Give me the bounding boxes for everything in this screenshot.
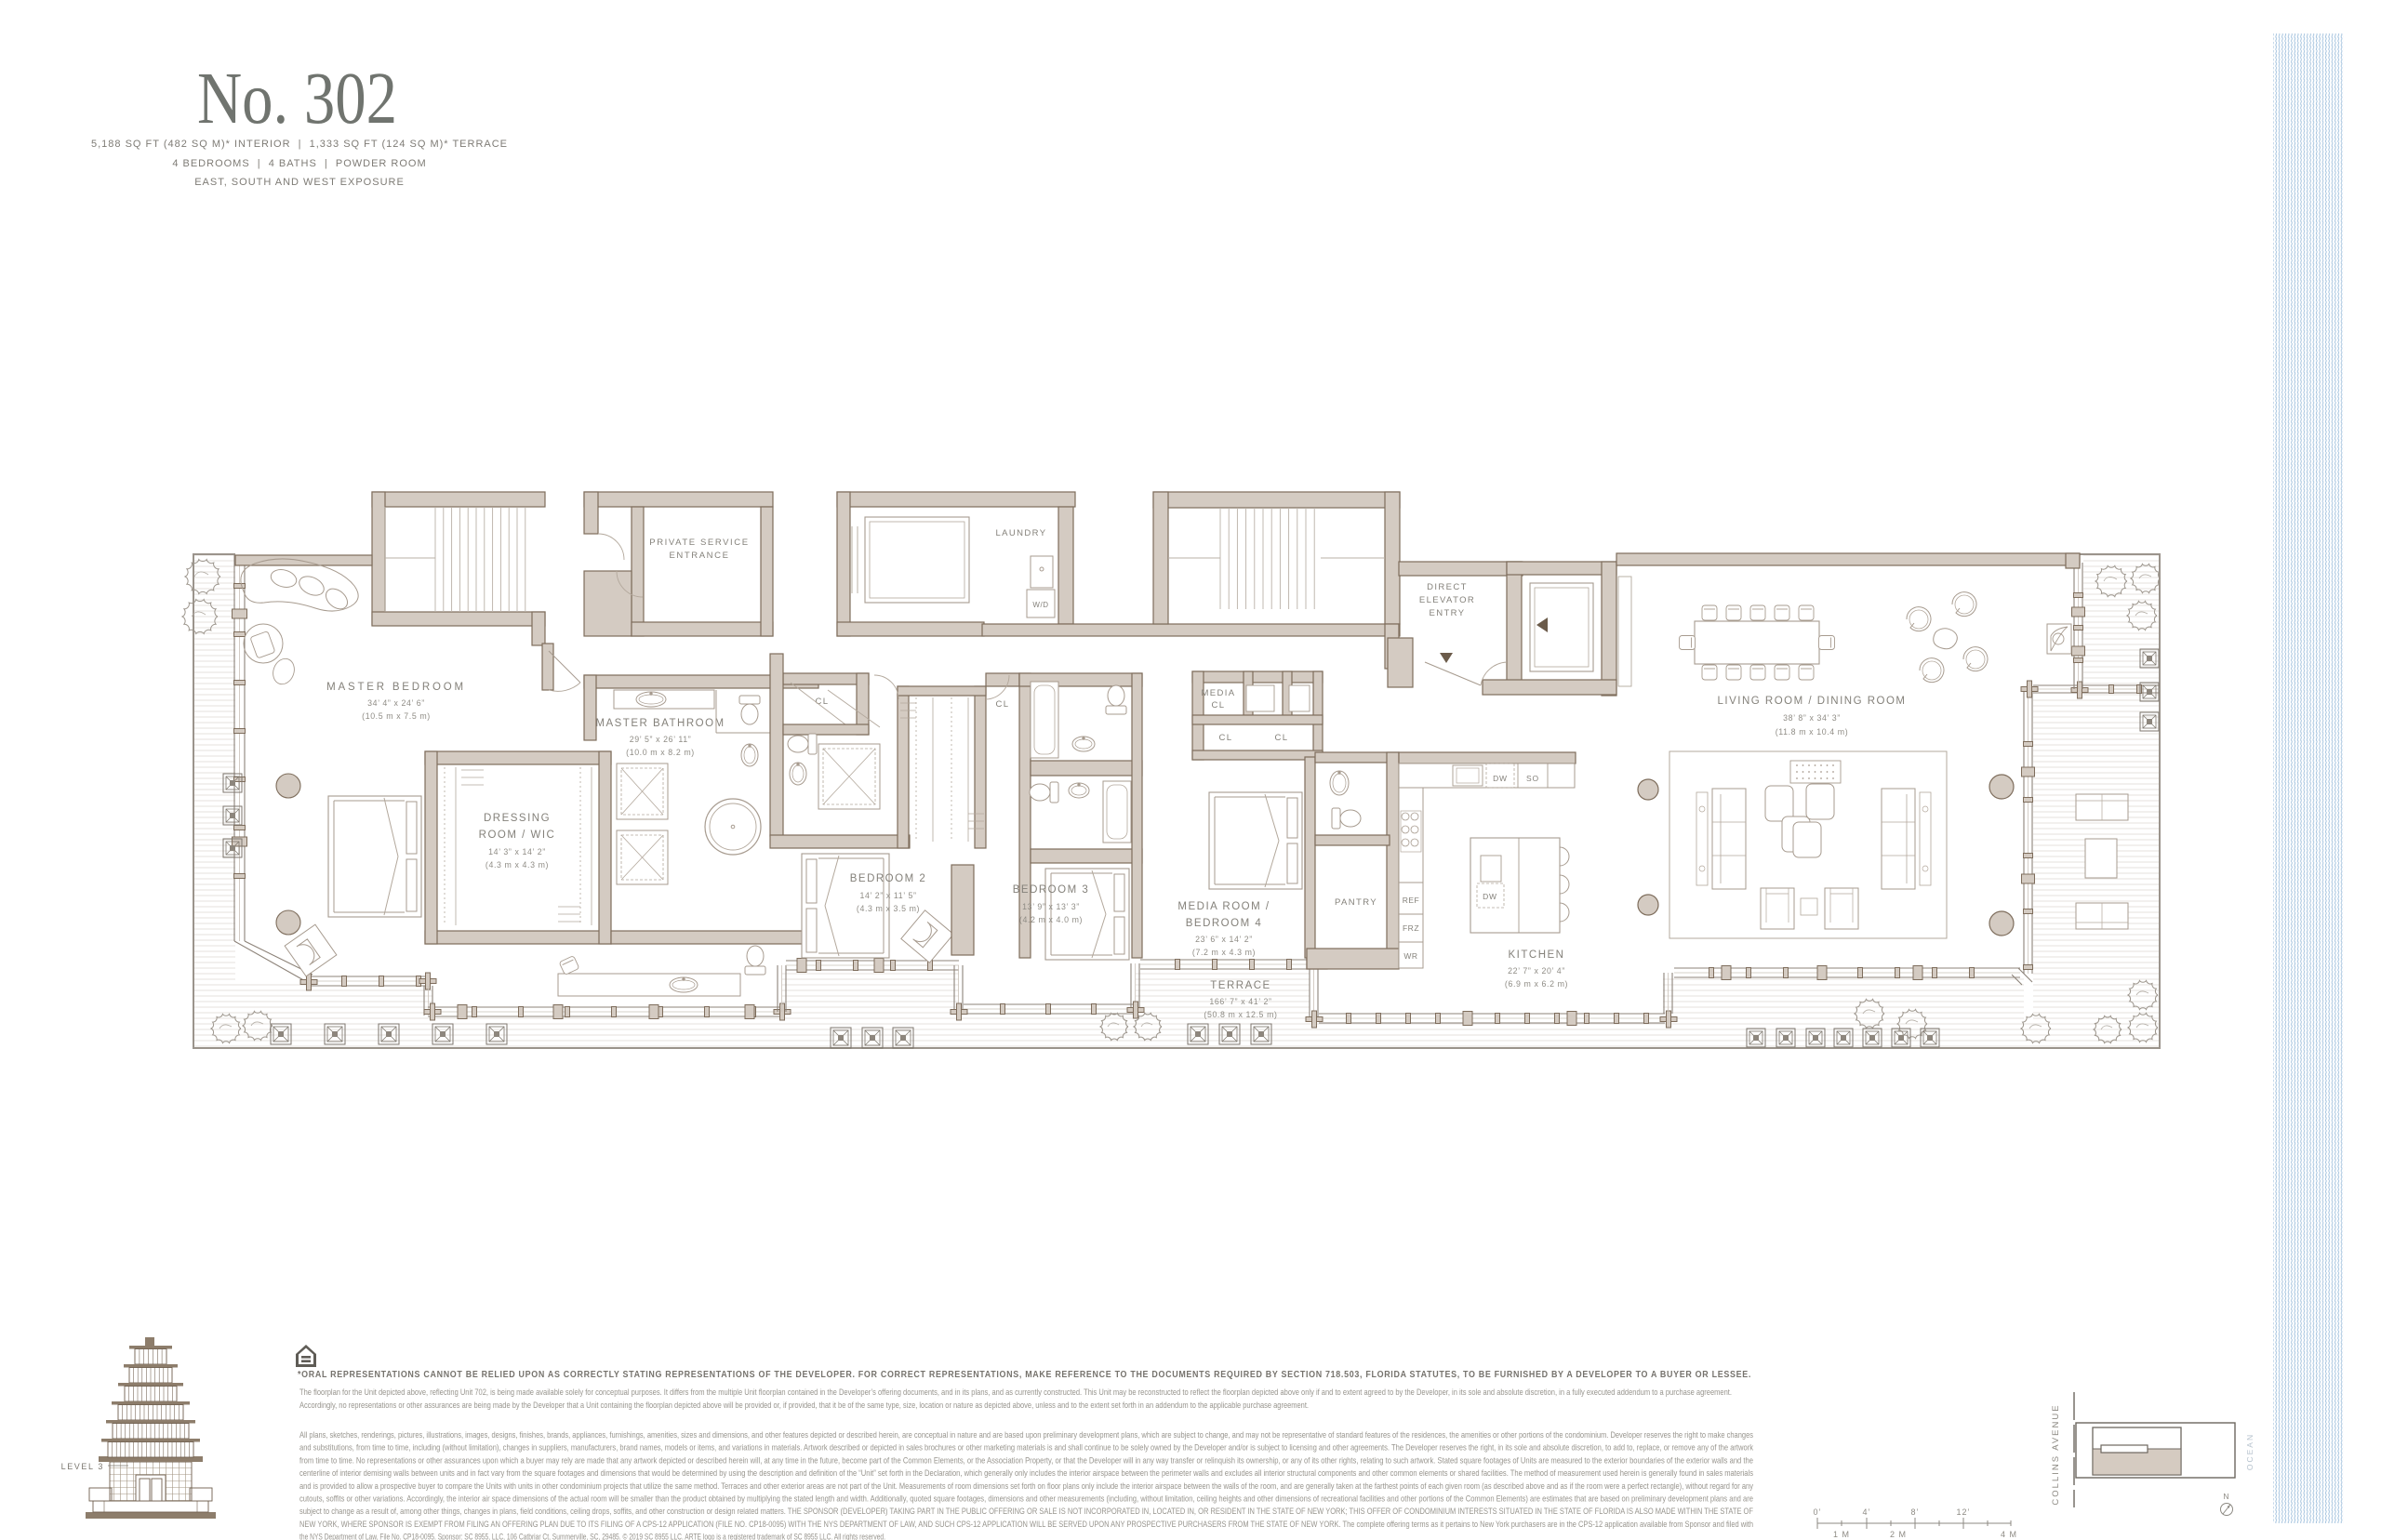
svg-text:and is provided to allow a pro: and is provided to allow a prospective b…: [299, 1481, 1753, 1492]
svg-text:MEDIA: MEDIA: [1201, 688, 1235, 698]
svg-text:CL: CL: [996, 699, 1010, 710]
svg-text:4’: 4’: [1862, 1507, 1870, 1517]
svg-text:ENTRY: ENTRY: [1429, 608, 1465, 618]
svg-text:166’ 7” x 41’ 2”: 166’ 7” x 41’ 2”: [1209, 997, 1271, 1006]
svg-text:ROOM / WIC: ROOM / WIC: [479, 830, 556, 841]
svg-text:LEVEL 3: LEVEL 3: [61, 1462, 104, 1471]
svg-text:The floorplan for the Unit dep: The floorplan for the Unit depicted abov…: [299, 1387, 1732, 1398]
svg-text:(4.3 m x 3.5 m): (4.3 m x 3.5 m): [857, 904, 920, 913]
svg-text:DW: DW: [1493, 774, 1508, 783]
svg-text:Accordingly, no representation: Accordingly, no representations or other…: [299, 1401, 1309, 1411]
svg-text:COLLINS AVENUE: COLLINS AVENUE: [2051, 1403, 2061, 1505]
svg-text:W/D: W/D: [1032, 601, 1048, 609]
svg-text:No. 302: No. 302: [197, 59, 397, 139]
svg-text:and substitutions, from time t: and substitutions, from time to time, in…: [299, 1443, 1753, 1454]
svg-text:CL: CL: [1275, 733, 1289, 743]
svg-text:CL: CL: [1219, 733, 1233, 743]
svg-text:from time to time. No represen: from time to time. No representations or…: [299, 1455, 1753, 1466]
svg-text:1 M: 1 M: [1833, 1530, 1850, 1539]
svg-text:(4.2 m x 4.0 m): (4.2 m x 4.0 m): [1019, 915, 1083, 924]
svg-text:SO: SO: [1526, 774, 1539, 783]
svg-text:DW: DW: [1483, 892, 1497, 901]
svg-text:34’ 4” x 24’ 6”: 34’ 4” x 24’ 6”: [367, 698, 425, 708]
svg-text:BEDROOM 3: BEDROOM 3: [1013, 884, 1090, 896]
svg-text:ENTRANCE: ENTRANCE: [669, 551, 729, 561]
svg-text:(6.9 m x 6.2 m): (6.9 m x 6.2 m): [1505, 979, 1568, 989]
svg-text:PANTRY: PANTRY: [1335, 897, 1377, 908]
svg-text:BEDROOM 2: BEDROOM 2: [850, 873, 927, 884]
svg-text:4 M: 4 M: [2001, 1530, 2017, 1539]
svg-text:23’ 6” x 14’ 2”: 23’ 6” x 14’ 2”: [1195, 935, 1253, 944]
svg-text:ELEVATOR: ELEVATOR: [1419, 595, 1475, 605]
svg-text:*ORAL REPRESENTATIONS CANNOT B: *ORAL REPRESENTATIONS CANNOT BE RELIED U…: [298, 1369, 1751, 1380]
svg-text:(4.3 m x 4.3 m): (4.3 m x 4.3 m): [486, 860, 549, 870]
svg-text:(50.8 m x 12.5 m): (50.8 m x 12.5 m): [1204, 1010, 1277, 1019]
svg-text:2 M: 2 M: [1890, 1530, 1907, 1539]
svg-text:WR: WR: [1403, 951, 1417, 961]
svg-text:12’: 12’: [1956, 1507, 1970, 1517]
svg-text:NEW YORK, WHERE SPONSOR IS EXE: NEW YORK, WHERE SPONSOR IS EXEMPT FROM F…: [299, 1520, 1753, 1530]
svg-text:LIVING ROOM / DINING ROOM: LIVING ROOM / DINING ROOM: [1718, 696, 1907, 707]
svg-text:(11.8 m x 10.4 m): (11.8 m x 10.4 m): [1776, 727, 1848, 737]
svg-text:5,188 SQ FT (482 SQ M)* INTERI: 5,188 SQ FT (482 SQ M)* INTERIOR | 1,333…: [91, 139, 508, 150]
svg-text:OCEAN: OCEAN: [2245, 1433, 2255, 1470]
svg-text:cutouts, soffits or other vari: cutouts, soffits or other variations. Ac…: [299, 1494, 1753, 1505]
svg-text:13’ 9” x 13’ 3”: 13’ 9” x 13’ 3”: [1022, 902, 1080, 911]
svg-text:MASTER BATHROOM: MASTER BATHROOM: [595, 718, 725, 729]
svg-text:22’ 7” x 20’ 4”: 22’ 7” x 20’ 4”: [1508, 966, 1565, 976]
svg-text:CL: CL: [1212, 700, 1226, 710]
svg-text:KITCHEN: KITCHEN: [1509, 949, 1565, 961]
svg-text:(7.2 m x 4.3 m): (7.2 m x 4.3 m): [1192, 948, 1256, 957]
svg-text:BEDROOM 4: BEDROOM 4: [1186, 918, 1263, 929]
svg-text:DIRECT: DIRECT: [1427, 582, 1468, 592]
svg-text:29’ 5” x 26’ 11”: 29’ 5” x 26’ 11”: [630, 735, 691, 744]
svg-text:TERRACE: TERRACE: [1210, 980, 1270, 991]
svg-text:REF: REF: [1403, 896, 1420, 905]
svg-text:(10.0 m x 8.2 m): (10.0 m x 8.2 m): [626, 748, 695, 757]
svg-text:subject to change as a result: subject to change as a result of, among …: [299, 1507, 1753, 1517]
svg-text:CL: CL: [816, 697, 830, 707]
svg-text:EAST, SOUTH AND WEST EXPOSURE: EAST, SOUTH AND WEST EXPOSURE: [194, 177, 405, 188]
svg-text:LAUNDRY: LAUNDRY: [995, 528, 1046, 538]
svg-text:8’: 8’: [1910, 1507, 1919, 1517]
svg-text:0’: 0’: [1813, 1507, 1821, 1517]
svg-text:DRESSING: DRESSING: [484, 813, 551, 824]
svg-text:MEDIA ROOM /: MEDIA ROOM /: [1177, 901, 1270, 912]
svg-text:All plans, sketches, rendering: All plans, sketches, renderings, picture…: [299, 1430, 1753, 1440]
svg-text:PRIVATE SERVICE: PRIVATE SERVICE: [649, 538, 749, 548]
svg-text:14’ 2” x 11’ 5”: 14’ 2” x 11’ 5”: [860, 891, 917, 900]
svg-text:(10.5 m x 7.5 m): (10.5 m x 7.5 m): [362, 711, 431, 721]
svg-text:N: N: [2223, 1492, 2229, 1501]
svg-text:4 BEDROOMS | 4 BATHS | POW: 4 BEDROOMS | 4 BATHS | POWDER ROOM: [172, 158, 426, 169]
svg-text:MASTER BEDROOM: MASTER BEDROOM: [326, 682, 466, 693]
svg-text:FRZ: FRZ: [1403, 923, 1419, 933]
svg-text:the NYS Department of Law, Fil: the NYS Department of Law, File No. CP18…: [299, 1533, 885, 1540]
svg-text:14’ 3” x 14’ 2”: 14’ 3” x 14’ 2”: [488, 847, 546, 856]
svg-text:38’ 8” x 34’ 3”: 38’ 8” x 34’ 3”: [1783, 713, 1841, 723]
svg-text:centerline of interior demisin: centerline of interior demising walls be…: [299, 1468, 1753, 1479]
